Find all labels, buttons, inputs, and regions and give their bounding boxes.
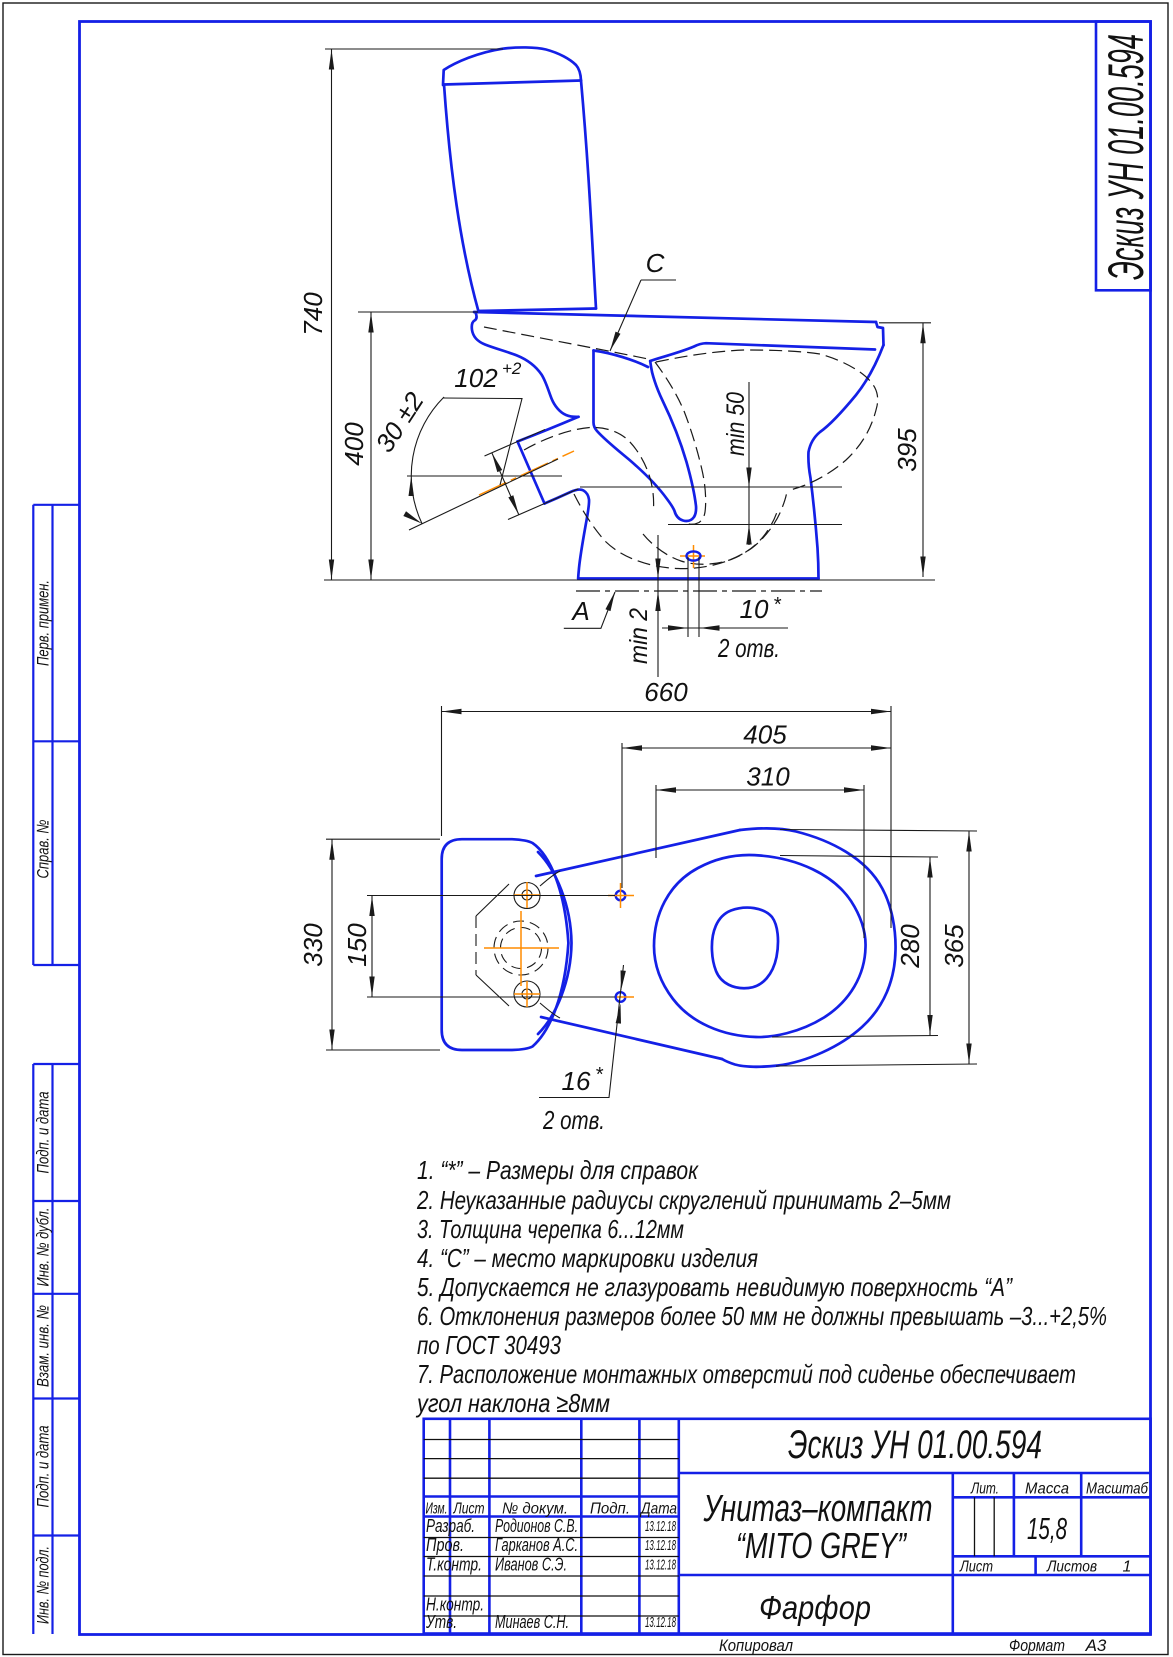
svg-text:1. “*” – Размеры для справок: 1. “*” – Размеры для справок [417, 1155, 699, 1185]
svg-text:Лит.: Лит. [970, 1481, 999, 1498]
svg-text:150: 150 [342, 923, 372, 967]
svg-text:Инв. № дубл.: Инв. № дубл. [34, 1208, 53, 1287]
svg-text:330: 330 [298, 923, 328, 967]
svg-text:13.12.18: 13.12.18 [645, 1557, 676, 1574]
svg-text:13.12.18: 13.12.18 [645, 1614, 676, 1631]
svg-text:400: 400 [339, 422, 369, 466]
svg-text:угол наклона ≥8мм: угол наклона ≥8мм [415, 1388, 610, 1418]
svg-text:Утв.: Утв. [425, 1612, 457, 1632]
svg-text:3. Толщина черепка 6...12мм: 3. Толщина черепка 6...12мм [417, 1214, 684, 1244]
svg-text:660: 660 [644, 677, 688, 707]
svg-text:Перв. примен.: Перв. примен. [34, 580, 53, 666]
svg-text:395: 395 [892, 428, 922, 472]
svg-text:4. “С” – место маркировки изде: 4. “С” – место маркировки изделия [417, 1243, 758, 1273]
svg-text:*: * [595, 1064, 604, 1086]
svg-text:Подп. и дата: Подп. и дата [34, 1426, 53, 1508]
svg-text:10: 10 [740, 594, 769, 624]
svg-text:6. Отклонения размеров более 5: 6. Отклонения размеров более 50 мм не до… [417, 1301, 1107, 1331]
svg-text:1: 1 [1123, 1559, 1132, 1576]
svg-text:30 ±2: 30 ±2 [369, 386, 430, 457]
svg-text:№ докум.: № докум. [502, 1501, 568, 1518]
svg-text:2. Неуказанные радиусы скругле: 2. Неуказанные радиусы скруглений приним… [416, 1185, 951, 1215]
svg-text:min 50: min 50 [722, 392, 750, 456]
svg-text:2 отв.: 2 отв. [542, 1105, 605, 1135]
svg-text:7. Расположение монтажных отве: 7. Расположение монтажных отверстий под … [417, 1359, 1076, 1389]
svg-text:Формат: Формат [1009, 1636, 1065, 1655]
svg-text:Пров.: Пров. [426, 1535, 464, 1555]
svg-text:405: 405 [743, 720, 787, 750]
svg-text:2 отв.: 2 отв. [717, 633, 780, 663]
svg-text:Подп.: Подп. [590, 1501, 630, 1518]
svg-text:280: 280 [895, 924, 925, 969]
svg-text:13.12.18: 13.12.18 [645, 1537, 676, 1554]
svg-text:Подп. и дата: Подп. и дата [34, 1092, 53, 1174]
svg-text:Лист: Лист [959, 1559, 993, 1576]
svg-text:“MITO GREY”: “MITO GREY” [736, 1525, 908, 1566]
svg-text:С: С [646, 248, 665, 278]
svg-text:Инв. № подл.: Инв. № подл. [34, 1546, 53, 1624]
svg-text:Эскиз УН 01.00.594: Эскиз УН 01.00.594 [788, 1423, 1042, 1467]
svg-text:Разраб.: Разраб. [426, 1516, 475, 1536]
svg-text:А: А [570, 596, 589, 626]
svg-text:5. Допускается не глазуровать: 5. Допускается не глазуровать невидимую … [417, 1272, 1013, 1302]
svg-text:Минаев С.Н.: Минаев С.Н. [495, 1612, 569, 1632]
svg-text:Взам. инв. №: Взам. инв. № [34, 1305, 53, 1387]
svg-text:Масштаб: Масштаб [1086, 1481, 1149, 1498]
svg-text:16: 16 [562, 1066, 591, 1096]
svg-text:Эскиз УН 01.00.594: Эскиз УН 01.00.594 [1098, 34, 1154, 280]
svg-text:Масса: Масса [1025, 1481, 1069, 1498]
svg-text:*: * [773, 594, 782, 616]
svg-text:102: 102 [454, 363, 498, 393]
svg-text:Дата: Дата [639, 1501, 677, 1518]
svg-text:Справ. №: Справ. № [34, 820, 53, 879]
svg-text:+2: +2 [502, 359, 522, 378]
svg-text:13.12.18: 13.12.18 [645, 1518, 676, 1535]
svg-text:Изм.: Изм. [426, 1501, 448, 1518]
svg-text:365: 365 [939, 924, 969, 968]
svg-text:Лист: Лист [453, 1501, 485, 1518]
svg-text:Фарфор: Фарфор [759, 1589, 871, 1626]
svg-text:Листов: Листов [1046, 1559, 1097, 1576]
svg-text:по ГОСТ 30493: по ГОСТ 30493 [417, 1330, 561, 1360]
svg-text:Копировал: Копировал [719, 1636, 793, 1655]
svg-text:740: 740 [298, 292, 328, 336]
svg-text:Т.контр.: Т.контр. [426, 1555, 482, 1575]
svg-text:Гарканов А.С.: Гарканов А.С. [495, 1535, 578, 1555]
svg-text:А3: А3 [1085, 1636, 1107, 1655]
svg-text:Родионов С.В.: Родионов С.В. [495, 1516, 578, 1536]
svg-text:310: 310 [746, 762, 790, 792]
svg-text:15,8: 15,8 [1027, 1511, 1067, 1546]
svg-text:Иванов С.Э.: Иванов С.Э. [495, 1555, 567, 1575]
svg-text:Унитаз–компакт: Унитаз–компакт [703, 1488, 933, 1530]
svg-text:min 2: min 2 [625, 608, 653, 664]
